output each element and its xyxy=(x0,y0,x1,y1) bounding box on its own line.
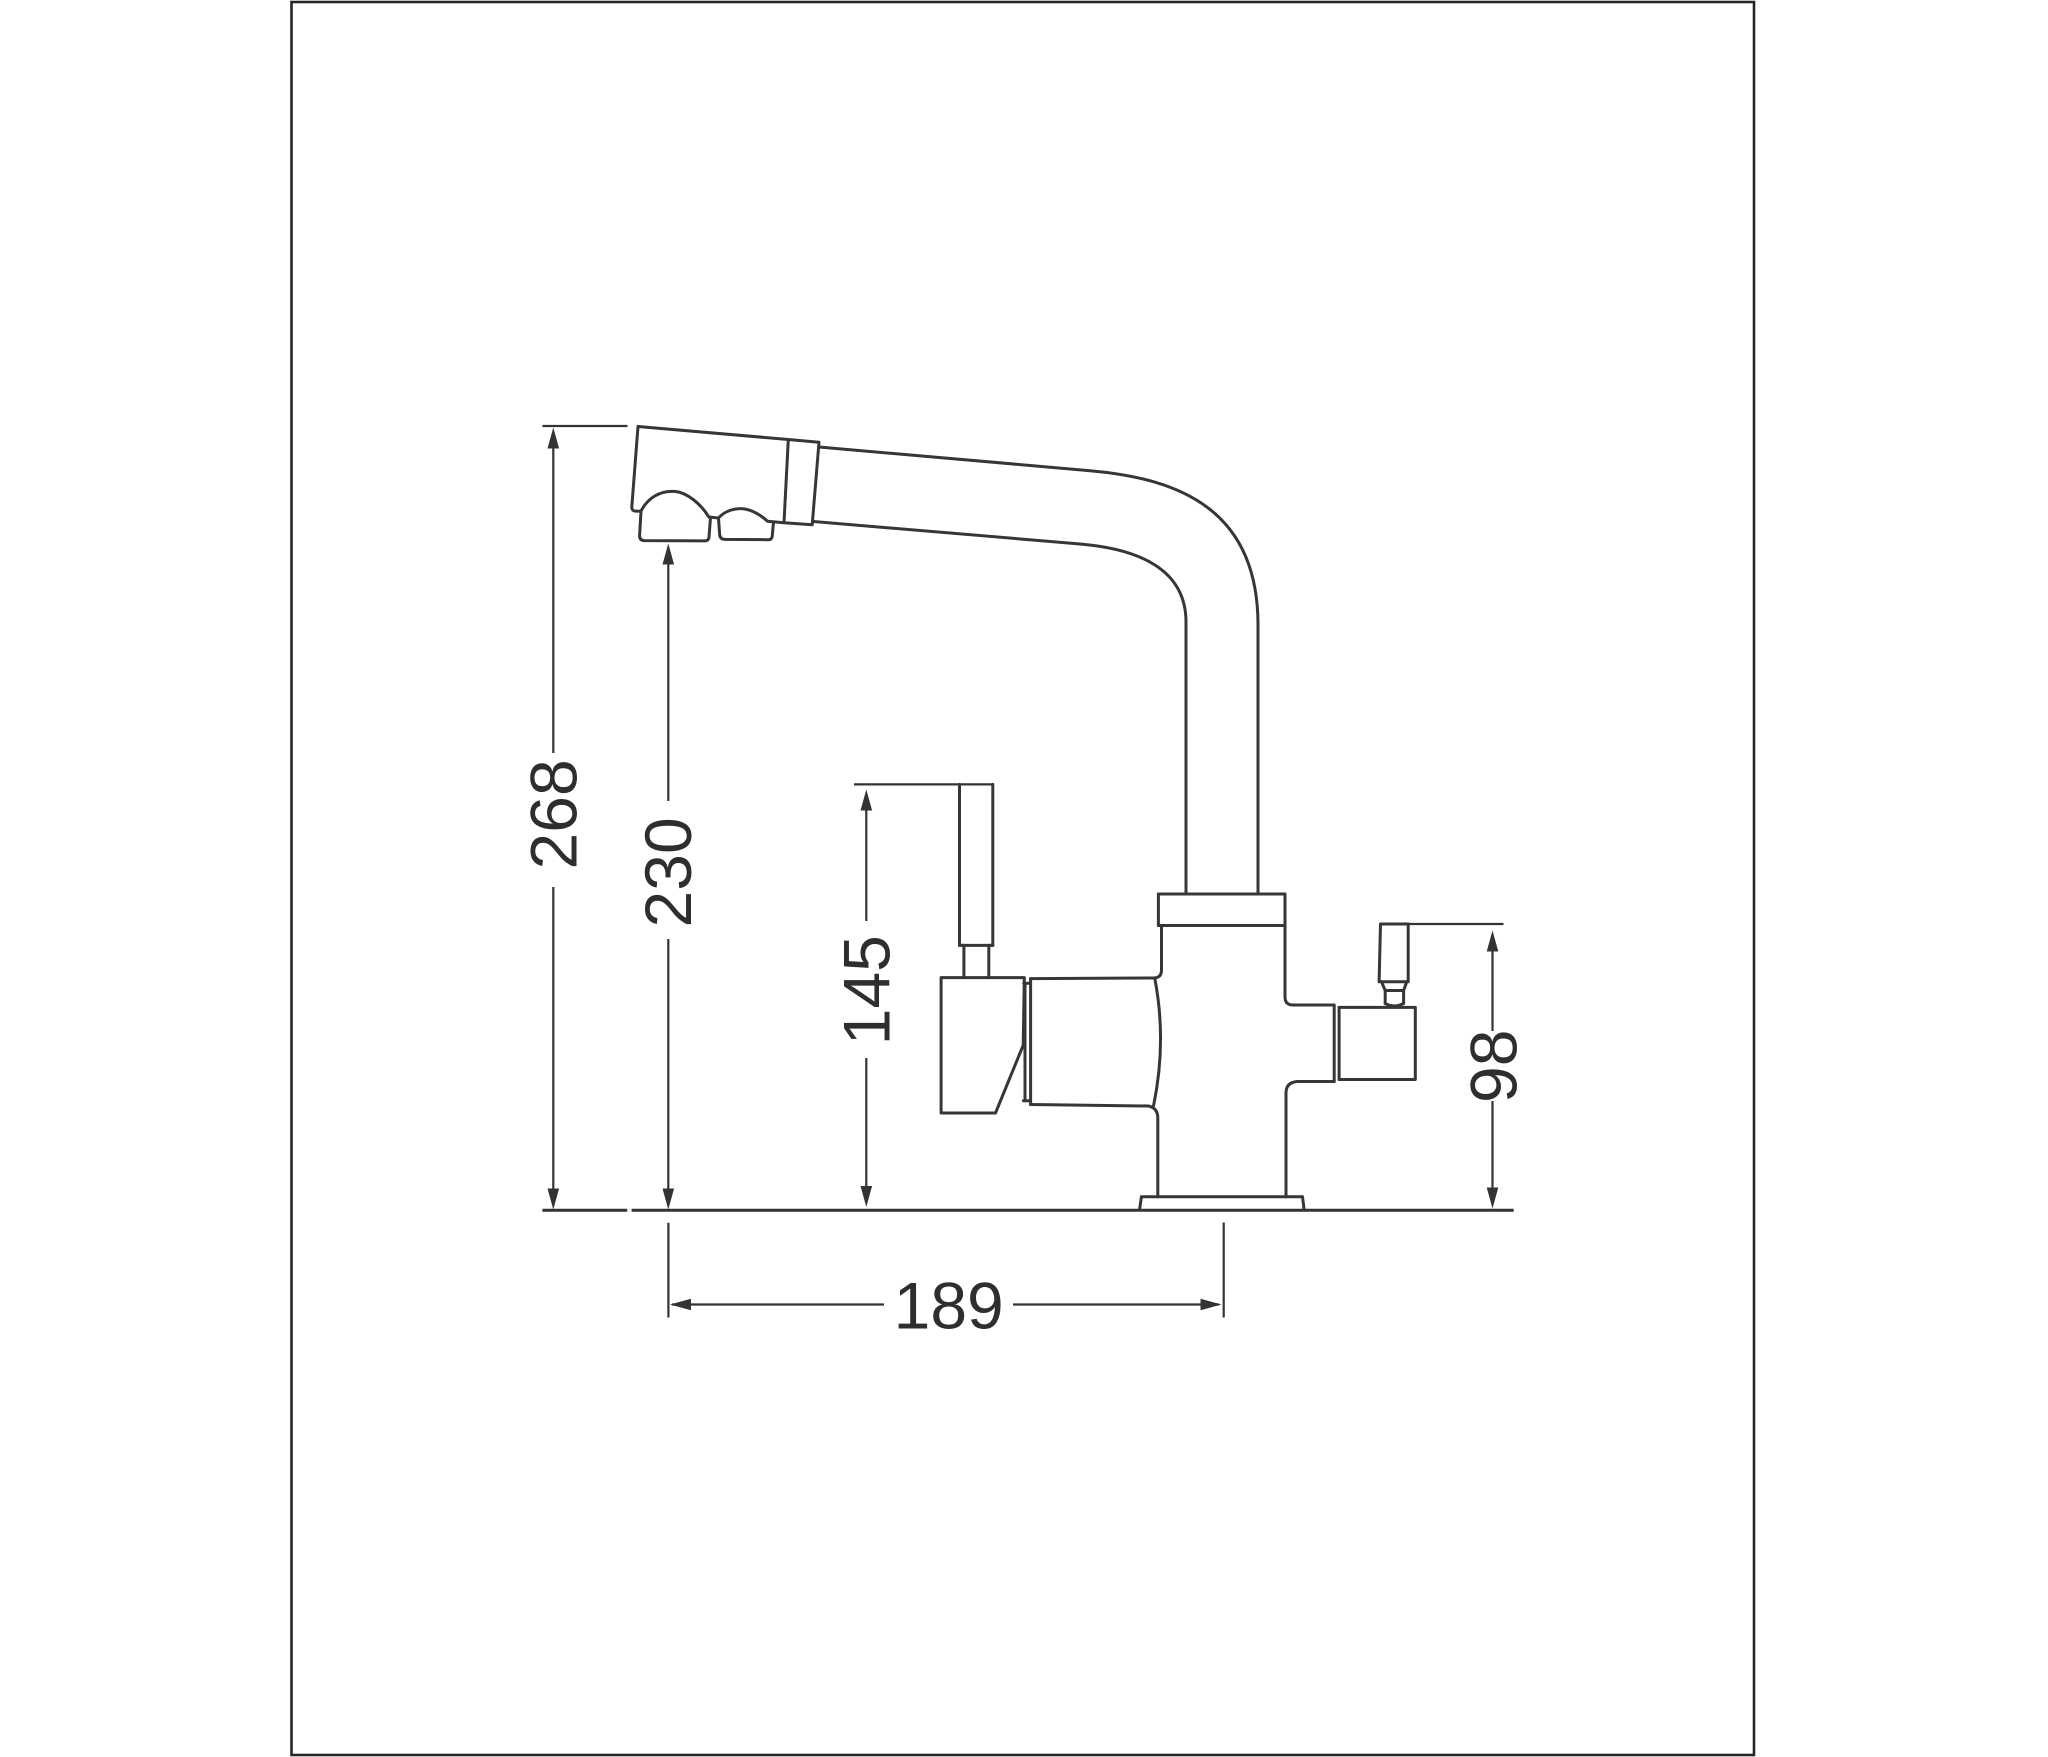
svg-text:268: 268 xyxy=(516,759,590,869)
svg-text:98: 98 xyxy=(1457,1030,1531,1103)
svg-text:230: 230 xyxy=(631,817,705,927)
svg-text:145: 145 xyxy=(829,935,903,1045)
svg-text:189: 189 xyxy=(894,1268,1004,1342)
